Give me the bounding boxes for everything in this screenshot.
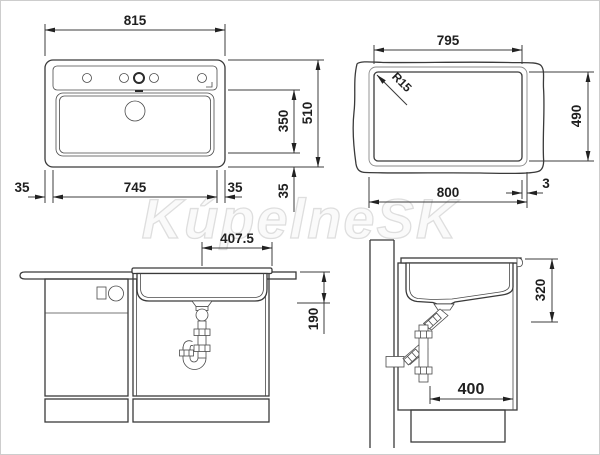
basin-front-section xyxy=(137,274,267,302)
sink-rim-front xyxy=(132,268,272,274)
pipe-nut xyxy=(415,367,432,374)
technical-drawing-sheet: KúpelneSK 815 35 745 xyxy=(0,0,600,455)
watermark-text: KúpelneSK xyxy=(142,187,460,250)
pipe-nut xyxy=(180,350,194,356)
dim-label-350: 350 xyxy=(276,110,291,133)
dim-label-510: 510 xyxy=(300,102,315,125)
dim-label-745: 745 xyxy=(124,180,147,195)
dim-label-795: 795 xyxy=(437,33,460,48)
pipe-nut xyxy=(415,331,432,338)
dim-label-815: 815 xyxy=(124,13,147,28)
wall-outlet-pipe xyxy=(386,357,404,368)
rim-lip xyxy=(517,258,523,267)
tailpipe xyxy=(198,321,206,358)
dim-label-400: 400 xyxy=(458,381,485,398)
center-mark xyxy=(135,90,143,92)
dim-label-rim-right: 35 xyxy=(227,180,243,195)
dim-label-190: 190 xyxy=(306,308,321,331)
dim-label-407-5: 407.5 xyxy=(220,231,254,246)
ball-joint xyxy=(196,309,208,321)
sink-rim-side xyxy=(401,258,521,263)
dim-label-800: 800 xyxy=(437,185,460,200)
drain-flange-side xyxy=(434,304,454,310)
dim-label-rim-bottom: 35 xyxy=(276,183,291,199)
sink-installation-drawing: KúpelneSK 815 35 745 xyxy=(0,0,600,455)
pipe-nut xyxy=(194,345,210,352)
pipe-nut xyxy=(194,329,210,336)
dim-label-rim-left: 35 xyxy=(14,180,30,195)
dim-label-490: 490 xyxy=(569,105,584,128)
dim-label-320: 320 xyxy=(533,279,548,302)
drain-flange xyxy=(192,301,212,307)
dim-label-3: 3 xyxy=(542,176,550,191)
